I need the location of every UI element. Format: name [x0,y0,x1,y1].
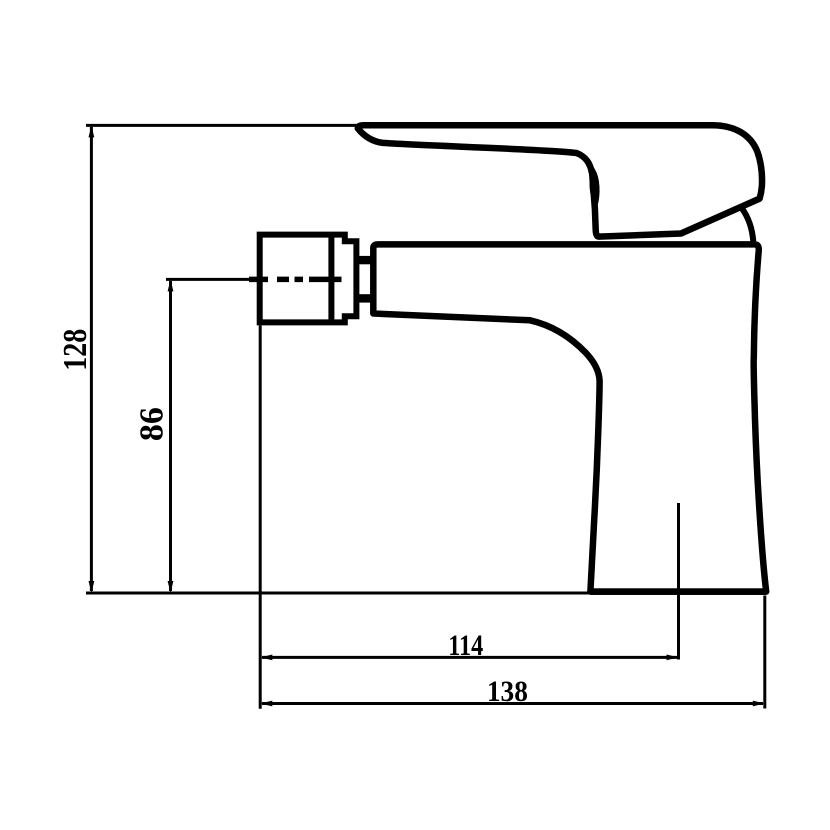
svg-text:128: 128 [57,329,94,371]
svg-text:114: 114 [448,629,483,662]
svg-text:138: 138 [487,675,528,708]
svg-text:86: 86 [134,407,171,441]
